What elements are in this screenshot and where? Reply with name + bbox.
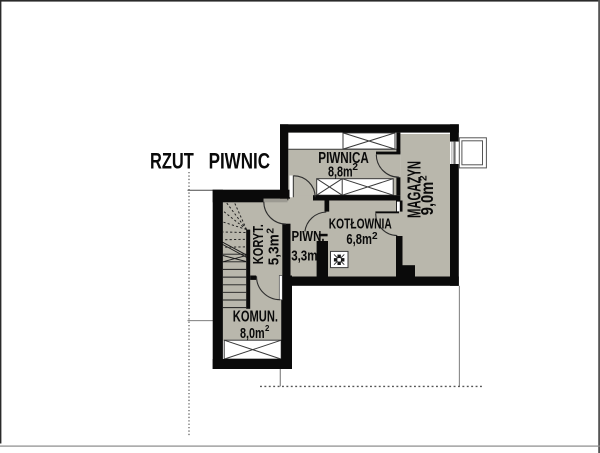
- svg-text:8,8m: 8,8m: [328, 163, 353, 180]
- svg-text:KOTŁOWNIA: KOTŁOWNIA: [329, 216, 392, 233]
- svg-text:KOMUN.: KOMUN.: [233, 309, 278, 326]
- svg-text:2: 2: [265, 324, 270, 333]
- svg-text:KORYT.: KORYT.: [250, 224, 267, 264]
- svg-text:PIWN.: PIWN.: [292, 228, 325, 245]
- svg-text:2: 2: [419, 175, 430, 181]
- svg-text:9,0m: 9,0m: [417, 182, 437, 216]
- svg-text:6,8m: 6,8m: [346, 231, 372, 248]
- svg-text:2: 2: [352, 162, 358, 173]
- svg-text:5,3m: 5,3m: [266, 234, 283, 265]
- svg-text:2: 2: [265, 228, 276, 234]
- svg-text:PIWNIC: PIWNIC: [209, 149, 271, 174]
- svg-text:8,0m: 8,0m: [240, 325, 265, 342]
- svg-text:3,3m: 3,3m: [291, 247, 317, 264]
- svg-text:2: 2: [372, 231, 378, 242]
- svg-text:RZUT: RZUT: [150, 149, 194, 174]
